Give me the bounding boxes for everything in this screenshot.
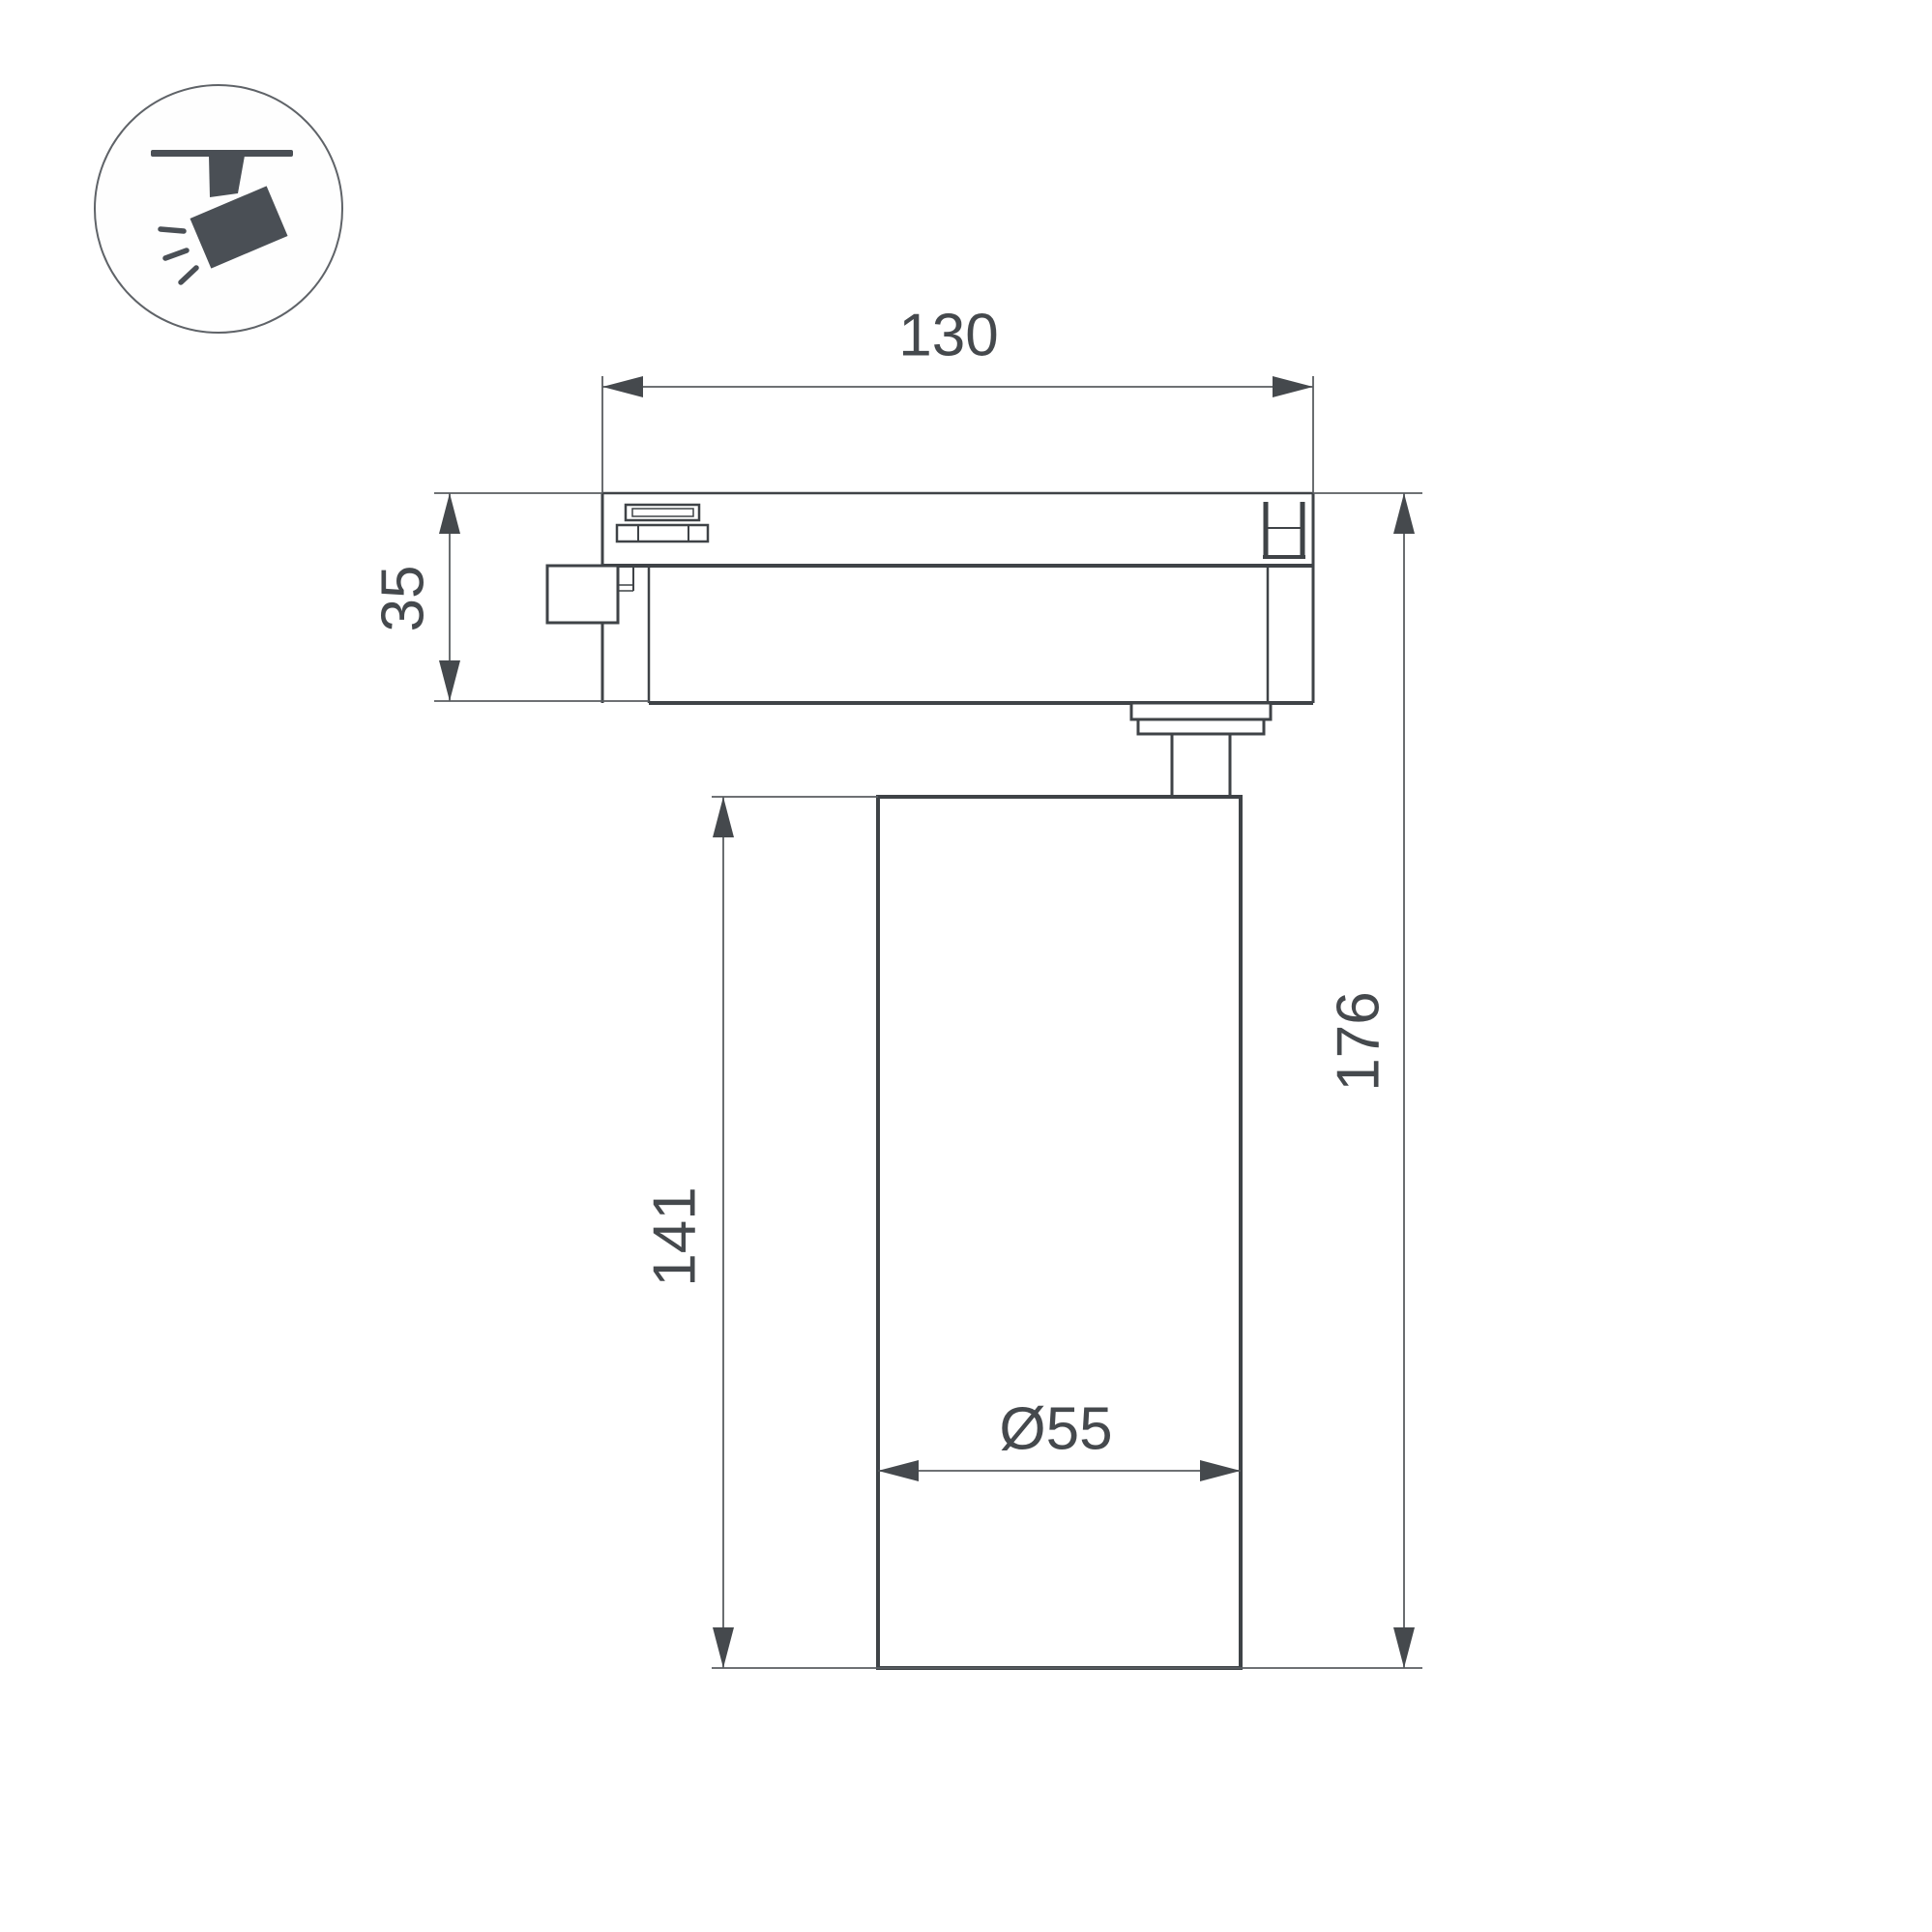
- adapter-latch-upper-inner: [632, 509, 693, 516]
- joint-flange-lower: [1138, 719, 1264, 734]
- adapter-lock-bracket: [1263, 502, 1305, 557]
- arrow-up: [1393, 493, 1415, 534]
- arrow-down: [439, 660, 460, 701]
- dimension-track-width: 130: [602, 303, 1313, 494]
- adapter-latch-upper: [626, 505, 699, 520]
- arrow-right: [1273, 376, 1313, 397]
- icon-track-bar: [151, 150, 293, 157]
- arrow-up: [713, 797, 734, 837]
- adapter-hook-detail: [617, 566, 633, 591]
- arrow-down: [713, 1627, 734, 1668]
- dimension-total-height: 176: [1313, 493, 1422, 1668]
- swivel-joint: [1131, 703, 1271, 797]
- arrow-left: [602, 376, 643, 397]
- lamp-body-cylinder: [878, 797, 1241, 1668]
- track-adapter: [547, 493, 1313, 703]
- dim-label-176: 176: [1326, 991, 1392, 1091]
- track-spotlight-icon: [95, 85, 342, 333]
- adapter-latch-lower: [617, 525, 708, 542]
- dim-label-35: 35: [370, 566, 437, 632]
- technical-drawing-page: 130 35 141 176 Ø55: [0, 0, 1932, 1932]
- dim-label-130: 130: [898, 303, 998, 369]
- dim-label-d55: Ø55: [999, 1396, 1112, 1463]
- arrow-up: [439, 493, 460, 534]
- joint-flange-upper: [1131, 703, 1271, 719]
- arrow-down: [1393, 1627, 1415, 1668]
- drawing-svg: 130 35 141 176 Ø55: [0, 0, 1932, 1932]
- dim-label-141: 141: [642, 1186, 709, 1286]
- adapter-knob: [547, 566, 618, 623]
